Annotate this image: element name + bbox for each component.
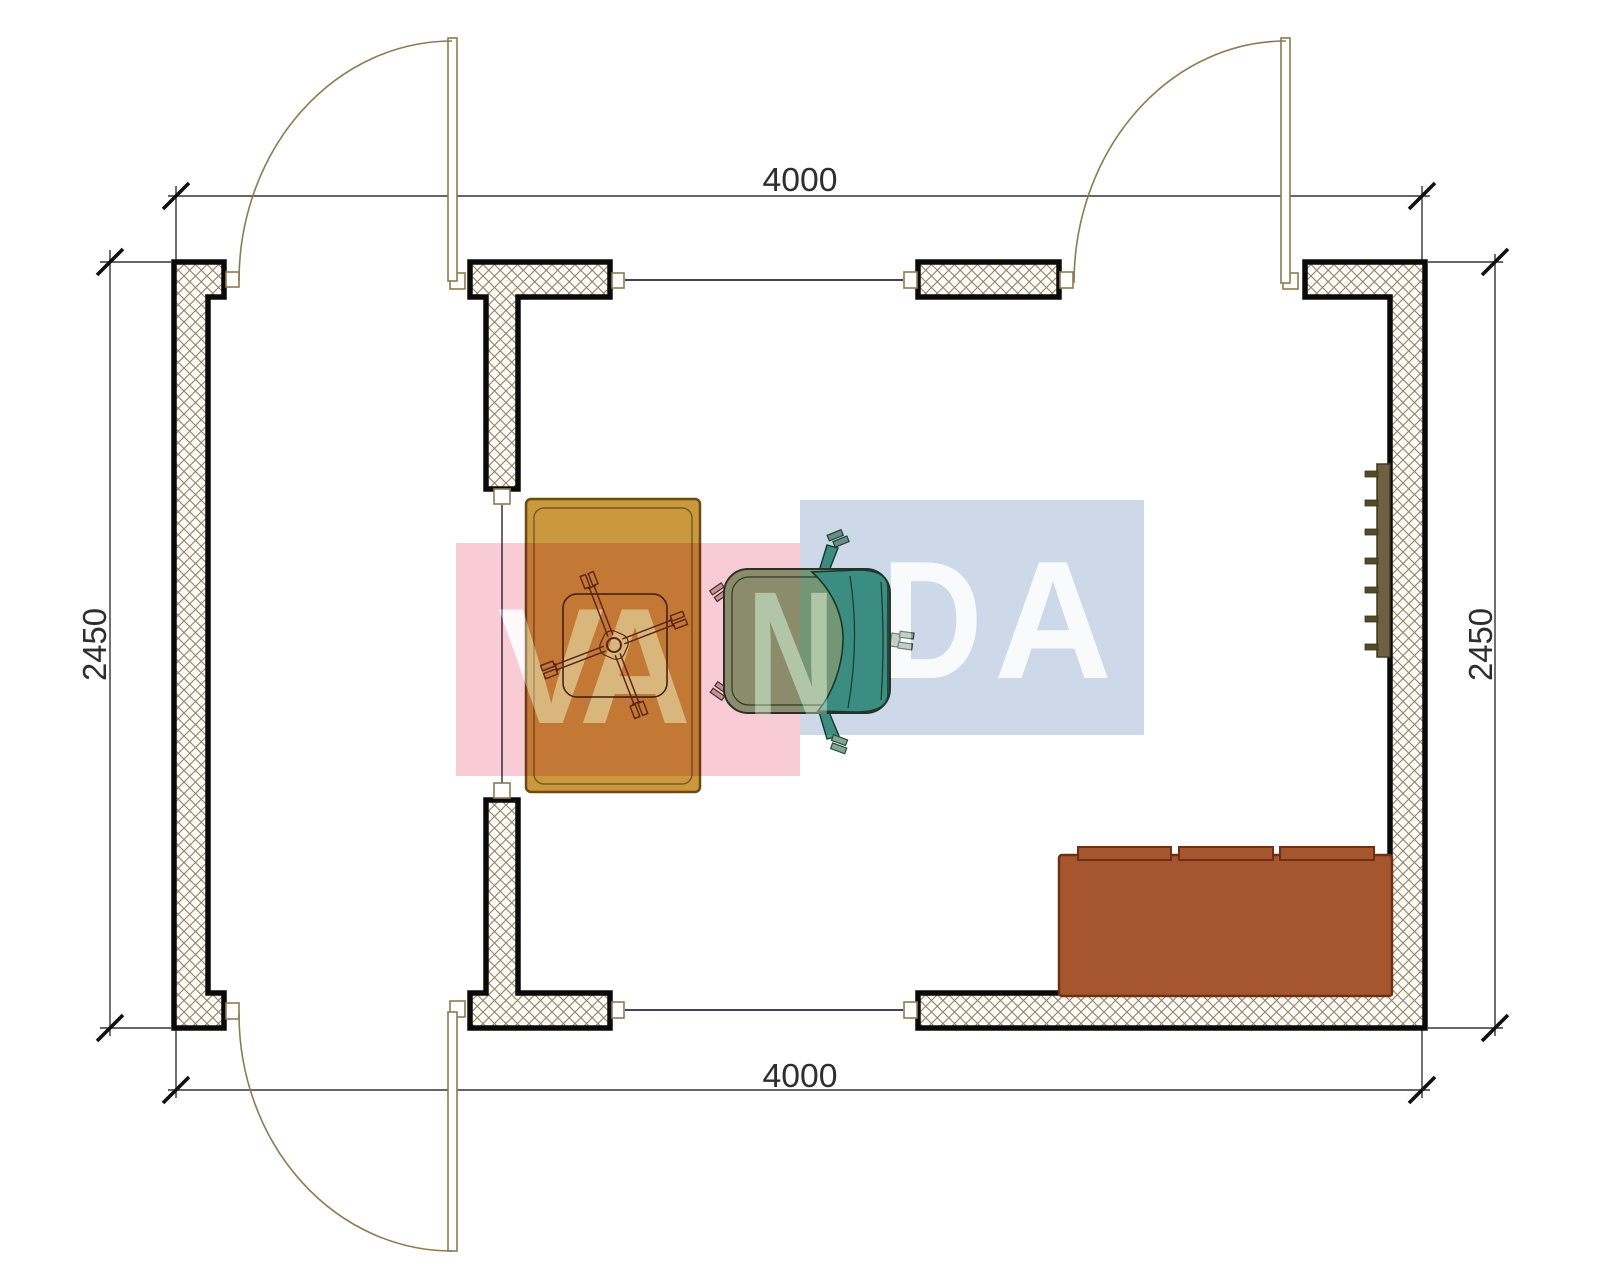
svg-text:4000: 4000 [763, 1057, 838, 1094]
svg-text:4000: 4000 [763, 161, 838, 198]
svg-text:2450: 2450 [76, 608, 113, 681]
svg-text:2450: 2450 [1462, 608, 1499, 681]
